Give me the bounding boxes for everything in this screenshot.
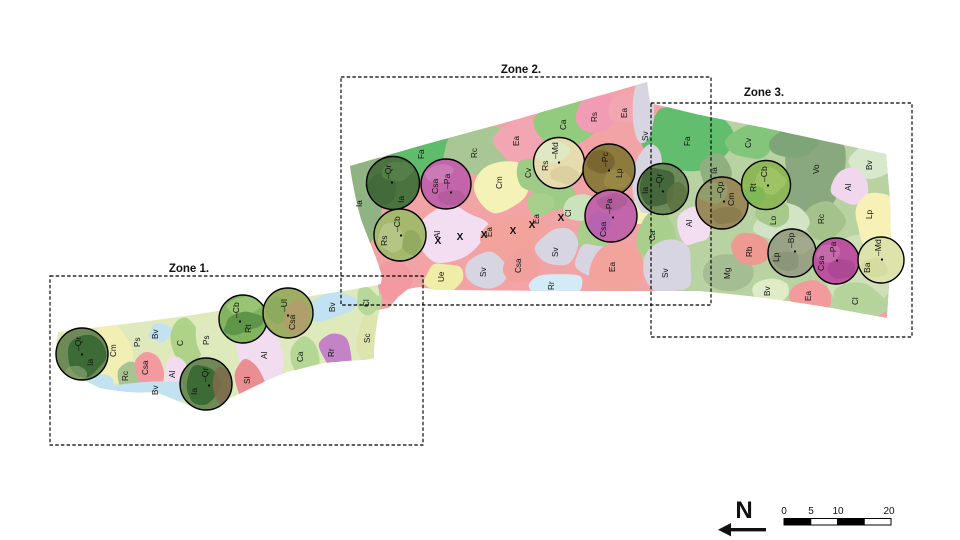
svg-text:Rc: Rc bbox=[121, 371, 130, 381]
svg-text:–Qr: –Qr bbox=[73, 337, 83, 351]
svg-text:Rr: Rr bbox=[547, 281, 556, 290]
svg-text:Cl: Cl bbox=[564, 209, 573, 217]
svg-text:Cl: Cl bbox=[362, 299, 371, 307]
svg-text:Cm: Cm bbox=[495, 176, 504, 189]
svg-text:Ea: Ea bbox=[532, 214, 541, 224]
svg-text:Csa: Csa bbox=[598, 221, 608, 237]
svg-text:Ia: Ia bbox=[85, 359, 95, 366]
svg-text:Ca: Ca bbox=[559, 119, 568, 130]
svg-text:–Pc: –Pc bbox=[600, 151, 610, 167]
svg-text:Csa: Csa bbox=[514, 258, 523, 273]
svg-text:10: 10 bbox=[832, 506, 844, 517]
svg-text:–Qp: –Qp bbox=[715, 182, 725, 198]
svg-text:Zone 1.: Zone 1. bbox=[169, 263, 209, 275]
svg-text:X: X bbox=[457, 232, 464, 243]
svg-text:20: 20 bbox=[883, 506, 895, 517]
svg-text:–Qr: –Qr bbox=[200, 368, 210, 382]
svg-text:Rb: Rb bbox=[745, 246, 754, 257]
svg-text:Rs: Rs bbox=[540, 160, 550, 171]
svg-text:Ca: Ca bbox=[296, 351, 305, 362]
svg-text:Lo: Lo bbox=[769, 215, 778, 225]
svg-text:Ia: Ia bbox=[396, 196, 406, 203]
svg-text:Lp: Lp bbox=[865, 209, 874, 219]
svg-text:–Qr: –Qr bbox=[383, 165, 393, 179]
svg-text:Lp: Lp bbox=[614, 168, 624, 178]
svg-text:Csa: Csa bbox=[287, 314, 297, 330]
svg-text:Ea: Ea bbox=[804, 291, 813, 301]
svg-text:Rc: Rc bbox=[817, 214, 826, 224]
svg-text:SI: SI bbox=[243, 376, 252, 384]
svg-text:Sc: Sc bbox=[363, 333, 372, 343]
svg-text:–Bp: –Bp bbox=[786, 232, 796, 248]
svg-text:–Pa: –Pa bbox=[604, 198, 614, 214]
svg-text:Rr: Rr bbox=[327, 348, 336, 357]
svg-text:Ca: Ca bbox=[648, 230, 657, 241]
svg-text:Bv: Bv bbox=[865, 160, 874, 170]
svg-text:Ea: Ea bbox=[485, 227, 494, 237]
svg-text:Bv: Bv bbox=[151, 385, 160, 395]
svg-text:Ia: Ia bbox=[640, 187, 650, 194]
svg-text:–Ul: –Ul bbox=[279, 299, 289, 312]
svg-text:5: 5 bbox=[808, 506, 814, 517]
svg-text:Cl: Cl bbox=[851, 297, 860, 305]
svg-text:Fa: Fa bbox=[683, 136, 692, 146]
svg-text:Al: Al bbox=[168, 371, 177, 378]
svg-text:–Cb: –Cb bbox=[231, 302, 241, 318]
svg-text:–Pa: –Pa bbox=[442, 173, 452, 189]
svg-text:Ea: Ea bbox=[512, 136, 521, 146]
svg-text:Csa: Csa bbox=[430, 178, 440, 194]
svg-text:–Qr: –Qr bbox=[654, 174, 664, 188]
svg-text:Al: Al bbox=[685, 220, 694, 227]
svg-text:Al: Al bbox=[260, 352, 269, 359]
svg-text:Cm: Cm bbox=[726, 193, 736, 206]
svg-text:Ps: Ps bbox=[202, 335, 211, 345]
svg-text:Al: Al bbox=[844, 184, 853, 191]
svg-text:Sv: Sv bbox=[551, 247, 560, 257]
svg-text:Ea: Ea bbox=[608, 262, 617, 272]
svg-text:Rt: Rt bbox=[243, 324, 253, 333]
svg-text:–Cb: –Cb bbox=[392, 216, 402, 232]
svg-text:Rs: Rs bbox=[590, 112, 599, 122]
svg-text:0: 0 bbox=[781, 506, 787, 517]
svg-text:Vo: Vo bbox=[812, 164, 821, 174]
svg-text:Bv: Bv bbox=[763, 286, 772, 296]
svg-text:Ps: Ps bbox=[133, 337, 142, 347]
svg-text:Rc: Rc bbox=[470, 148, 479, 158]
svg-text:Cm: Cm bbox=[109, 344, 118, 357]
svg-text:Csa: Csa bbox=[141, 360, 150, 375]
svg-text:Ba: Ba bbox=[862, 262, 872, 273]
svg-text:–Cb: –Cb bbox=[759, 166, 769, 182]
svg-text:Lp: Lp bbox=[771, 252, 781, 262]
svg-text:Al: Al bbox=[433, 231, 442, 238]
svg-text:Ue: Ue bbox=[437, 271, 446, 282]
svg-text:X: X bbox=[510, 226, 517, 237]
svg-text:Sv: Sv bbox=[641, 131, 650, 141]
svg-text:Bv: Bv bbox=[328, 302, 337, 312]
svg-text:Fa: Fa bbox=[417, 149, 426, 159]
svg-text:Zone 2.: Zone 2. bbox=[501, 64, 541, 76]
svg-text:C: C bbox=[176, 340, 185, 346]
svg-text:Rt: Rt bbox=[748, 183, 758, 192]
svg-text:Ea: Ea bbox=[620, 108, 629, 118]
svg-text:Bv: Bv bbox=[151, 329, 160, 339]
svg-text:Cv: Cv bbox=[524, 167, 533, 178]
svg-text:–Md: –Md bbox=[550, 142, 560, 159]
svg-text:Ia: Ia bbox=[189, 388, 199, 395]
svg-text:Cv: Cv bbox=[744, 137, 753, 148]
svg-text:Ia: Ia bbox=[355, 200, 364, 207]
svg-text:–Pa: –Pa bbox=[828, 241, 838, 257]
svg-text:Sv: Sv bbox=[479, 267, 488, 277]
svg-text:N: N bbox=[735, 497, 752, 524]
svg-text:Sv: Sv bbox=[661, 268, 670, 278]
svg-text:Mg: Mg bbox=[723, 267, 732, 279]
svg-text:Zone 3.: Zone 3. bbox=[744, 87, 784, 99]
svg-text:Rs: Rs bbox=[379, 235, 389, 246]
svg-text:Csa: Csa bbox=[816, 255, 826, 271]
svg-text:–Md: –Md bbox=[873, 239, 883, 256]
